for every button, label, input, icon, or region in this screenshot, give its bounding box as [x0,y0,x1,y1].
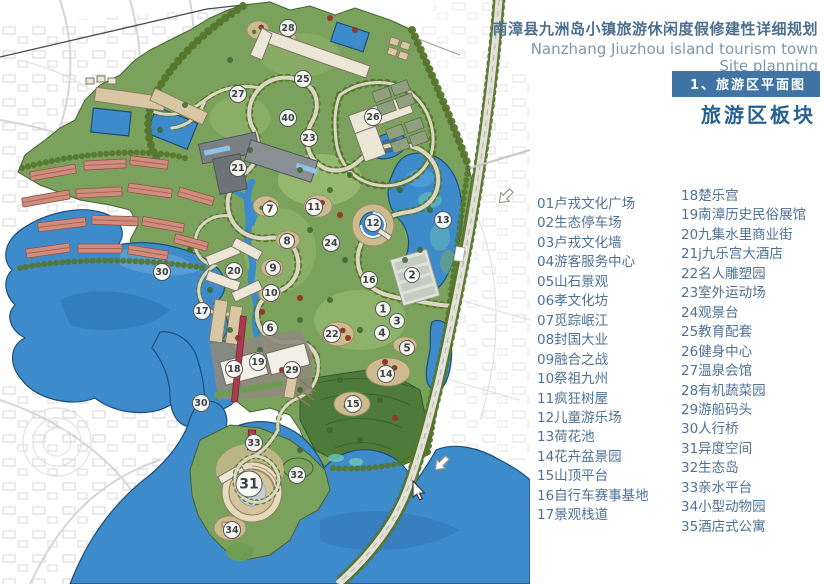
legend-item: 34小型动物园 [681,498,806,517]
legend-item: 05山石景观 [537,273,649,292]
svg-text:28: 28 [281,23,295,34]
map-marker-34: 34 [224,522,241,539]
svg-text:8: 8 [283,236,290,248]
map-marker-14: 14 [378,366,395,383]
page-title-en: Nanzhang Jiuzhou island tourism town [531,40,818,58]
map-marker-23: 23 [301,130,318,147]
svg-text:13: 13 [436,215,449,226]
map-marker-40: 40 [280,110,297,127]
map-marker-5: 5 [400,341,415,356]
legend-item: 13荷花池 [537,428,649,447]
legend-item: 02生态停车场 [537,214,649,233]
map-marker-26: 26 [365,109,382,126]
map-marker-1: 1 [376,302,391,317]
svg-text:25: 25 [296,74,309,85]
svg-text:40: 40 [281,113,295,124]
svg-text:15: 15 [346,399,359,410]
legend-item: 28有机蔬菜园 [681,382,806,401]
svg-text:19: 19 [251,357,264,368]
svg-text:2: 2 [408,270,415,282]
legend-item: 32生态岛 [681,459,806,478]
legend-item: 24观景台 [681,304,806,323]
svg-text:33: 33 [247,438,260,449]
legend-item: 26健身中心 [681,343,806,362]
legend-item: 16自行车赛事基地 [537,487,649,506]
svg-text:26: 26 [366,112,380,123]
legend-item: 30人行桥 [681,420,806,439]
legend-column-left: 01卢戎文化广场02生态停车场03卢戎文化墙04游客服务中心05山石景观06孝文… [537,195,649,526]
map-marker-10: 10 [263,285,280,302]
svg-text:11: 11 [307,202,320,213]
map-marker-22: 22 [324,326,341,343]
map-marker-7: 7 [263,202,278,217]
map-marker-33: 33 [246,435,263,452]
legend-column-right: 18楚乐宫19南漳历史民俗展馆20九集水里商业街21j九乐宫大酒店22名人雕塑园… [681,187,806,537]
section-banner: 1、旅游区平面图 [672,71,820,97]
map-marker-31: 31 [236,471,262,497]
map-marker-28: 28 [280,20,297,37]
map-marker-12: 12 [365,215,382,232]
legend-item: 23室外运动场 [681,284,806,303]
svg-text:3: 3 [393,316,400,328]
legend-item: 22名人雕塑园 [681,265,806,284]
map-marker-15: 15 [345,396,362,413]
legend-item: 33亲水平台 [681,479,806,498]
legend-item: 35酒店式公寓 [681,518,806,537]
legend-item: 21j九乐宫大酒店 [681,245,806,264]
map-marker-6: 6 [263,321,278,336]
legend-item: 31异度空间 [681,440,806,459]
svg-text:17: 17 [195,306,208,317]
svg-text:1: 1 [379,304,386,316]
svg-text:30: 30 [194,398,208,409]
site-plan-map: 2825272640232111713128249203021610117364… [0,0,530,584]
legend-item: 08封国大业 [537,331,649,350]
svg-text:32: 32 [290,470,303,481]
legend-item: 12儿童游乐场 [537,409,649,428]
map-marker-27: 27 [230,86,247,103]
legend-item: 20九集水里商业街 [681,226,806,245]
legend-item: 25教育配套 [681,323,806,342]
site-planning-page: 2825272640232111713128249203021610117364… [0,0,824,584]
map-marker-20: 20 [226,263,243,280]
legend-item: 14花卉盆景园 [537,448,649,467]
map-marker-4: 4 [375,326,390,341]
map-marker-9: 9 [266,261,281,276]
map-marker-11: 11 [306,199,323,216]
svg-text:16: 16 [362,275,376,286]
svg-text:34: 34 [225,525,239,536]
map-marker-19: 19 [250,354,267,371]
map-marker-32: 32 [289,467,306,484]
svg-text:27: 27 [231,89,244,100]
page-title: 南漳县九洲岛小镇旅游休闲度假修建性详细规划 [492,18,818,39]
legend-item: 04游客服务中心 [537,253,649,272]
legend-item: 15山顶平台 [537,467,649,486]
legend-item: 18楚乐宫 [681,187,806,206]
map-marker-30: 30 [154,264,171,281]
svg-text:30: 30 [155,267,169,278]
legend-item: 03卢戎文化墙 [537,234,649,253]
map-marker-16: 16 [361,272,378,289]
svg-text:4: 4 [378,328,385,340]
legend-item: 09融合之战 [537,351,649,370]
svg-text:7: 7 [266,204,273,216]
map-marker-8: 8 [280,234,295,249]
map-marker-3: 3 [390,314,405,329]
legend-item: 11疯狂树屋 [537,390,649,409]
map-marker-17: 17 [194,303,211,320]
legend-item: 29游船码头 [681,401,806,420]
legend-item: 10祭祖九州 [537,370,649,389]
svg-text:24: 24 [324,238,338,249]
svg-text:9: 9 [269,263,276,275]
svg-text:31: 31 [239,477,258,493]
svg-text:21: 21 [231,163,244,174]
svg-text:18: 18 [227,364,241,375]
svg-text:29: 29 [285,365,298,376]
legend-item: 19南漳历史民俗展馆 [681,206,806,225]
map-marker-21: 21 [230,160,247,177]
svg-text:12: 12 [366,218,379,229]
legend-item: 07觅踪岷江 [537,312,649,331]
svg-text:10: 10 [264,288,278,299]
map-marker-25: 25 [295,71,312,88]
section-subtitle: 旅游区板块 [701,99,816,128]
map-marker-29: 29 [284,362,301,379]
legend-item: 06孝文化坊 [537,292,649,311]
legend-item: 27温泉会馆 [681,362,806,381]
svg-text:5: 5 [403,343,410,355]
svg-text:14: 14 [379,369,393,380]
legend-item: 01卢戎文化广场 [537,195,649,214]
map-marker-18: 18 [226,361,243,378]
svg-text:20: 20 [227,266,241,277]
map-marker-2: 2 [405,268,420,283]
svg-text:22: 22 [325,329,338,340]
map-marker-13: 13 [435,212,452,229]
svg-text:6: 6 [266,323,273,335]
legend-item: 17景观栈道 [537,506,649,525]
map-marker-30: 30 [193,395,210,412]
map-marker-24: 24 [323,235,340,252]
svg-text:23: 23 [302,133,315,144]
